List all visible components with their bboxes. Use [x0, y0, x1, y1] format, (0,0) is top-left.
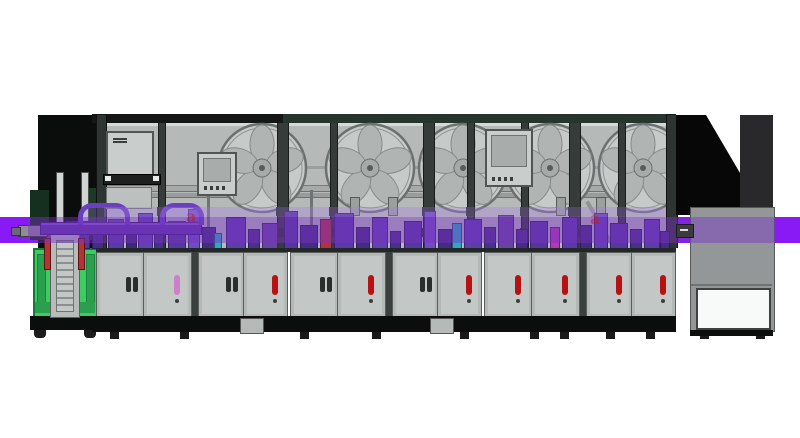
control-monitor — [197, 152, 237, 196]
leveling-foot — [180, 332, 189, 339]
cabinet-door — [631, 252, 676, 318]
door-indicator — [466, 275, 472, 295]
leveling-foot — [372, 332, 381, 339]
watermark-letter: a — [590, 211, 600, 227]
keyboard-tray — [103, 174, 161, 185]
cabinet-door — [437, 252, 482, 318]
leveling-foot — [560, 332, 569, 339]
outfeed-connector — [676, 224, 694, 238]
cabinet-door — [337, 252, 386, 318]
door-handle — [320, 277, 325, 292]
door-indicator — [272, 275, 278, 295]
watermark-letter: a — [186, 209, 196, 225]
outfeed-white-panel — [696, 288, 771, 330]
monitor-screen — [203, 158, 231, 182]
door-indicator — [368, 275, 374, 295]
door-indicator — [562, 275, 568, 295]
door-indicator — [174, 275, 180, 295]
monitor-label-lines — [113, 138, 127, 140]
door-handle — [126, 277, 131, 292]
door-handle — [420, 277, 425, 292]
cabinet-door — [586, 252, 633, 318]
leveling-foot — [110, 332, 119, 339]
green-cabinet-slot — [86, 254, 95, 308]
control-monitor — [485, 129, 533, 187]
infeed-shaft-cap — [11, 227, 21, 236]
assembly-line-machine-render: aa — [0, 0, 800, 438]
caster-wheel — [34, 330, 46, 338]
monitor-buttons — [492, 177, 516, 181]
outfeed-cabinet-seam — [691, 284, 772, 286]
monitor-buttons — [204, 186, 228, 190]
lift-chain-ladder — [56, 240, 74, 312]
cabinet-door — [484, 252, 533, 318]
cabinet-door — [243, 252, 288, 318]
highlight-band-overlay — [28, 217, 776, 243]
door-handle — [226, 277, 231, 292]
cabinet-door — [290, 252, 339, 318]
leveling-foot-block — [240, 318, 264, 334]
cabinet-door — [143, 252, 192, 318]
leveling-foot — [530, 332, 539, 339]
outfeed-base — [690, 330, 773, 336]
cabinet-door — [96, 252, 145, 318]
machine-base-frame — [92, 316, 676, 332]
leveling-foot-block — [430, 318, 454, 334]
leveling-foot — [646, 332, 655, 339]
leveling-foot — [460, 332, 469, 339]
control-monitor — [106, 131, 154, 177]
cabinet-door — [392, 252, 439, 318]
door-indicator — [616, 275, 622, 295]
monitor-screen — [491, 135, 527, 167]
cabinet-door — [531, 252, 580, 318]
leveling-foot — [606, 332, 615, 339]
cabinet-door — [198, 252, 245, 318]
left-base-frame — [30, 316, 100, 330]
door-indicator — [515, 275, 521, 295]
leveling-foot — [300, 332, 309, 339]
door-indicator — [660, 275, 666, 295]
